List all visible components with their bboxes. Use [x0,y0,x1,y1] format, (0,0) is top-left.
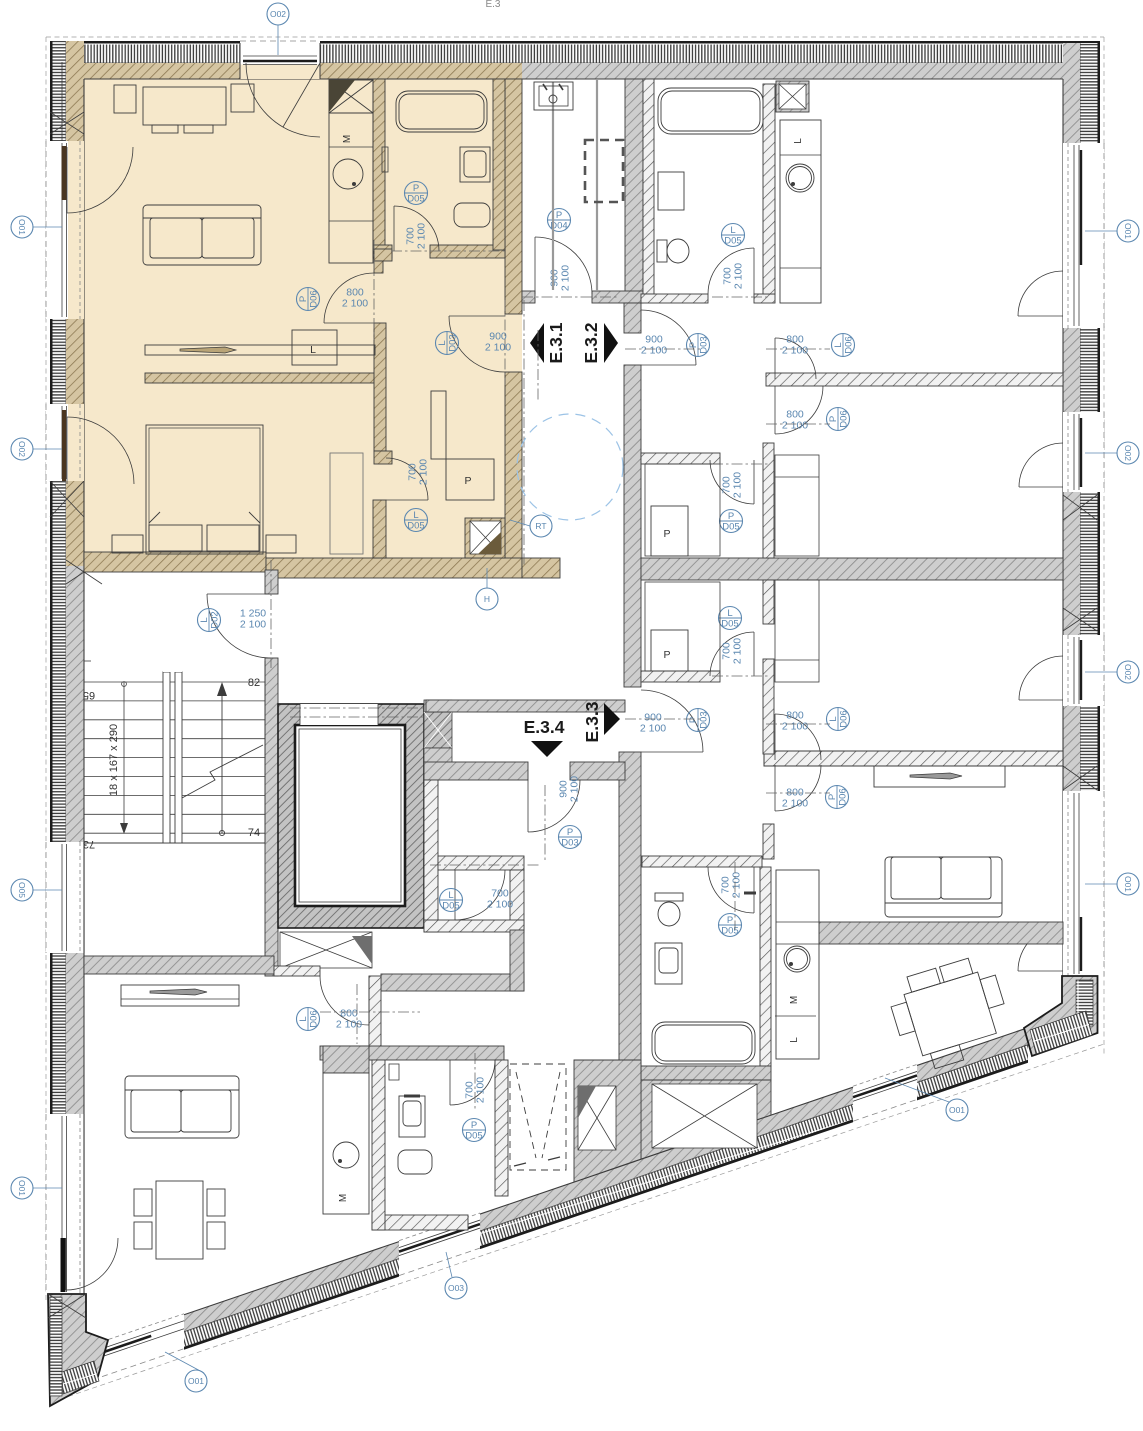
svg-text:2 100: 2 100 [475,1077,487,1103]
svg-text:L: L [298,1016,309,1021]
svg-text:2 100: 2 100 [782,798,808,810]
svg-text:O02: O02 [17,441,27,457]
svg-text:D05: D05 [721,926,738,937]
svg-text:65: 65 [83,689,95,701]
svg-text:L: L [448,890,453,901]
svg-text:H: H [484,594,490,604]
svg-text:O02: O02 [270,9,286,19]
svg-text:L: L [730,225,735,236]
svg-text:P: P [827,794,838,800]
svg-text:2 100: 2 100 [336,1019,362,1031]
svg-text:2 100: 2 100 [782,345,808,357]
svg-text:L: L [413,510,418,521]
svg-text:2 100: 2 100 [732,638,744,664]
svg-text:L: L [199,617,210,622]
svg-text:P: P [663,528,670,540]
svg-text:2 100: 2 100 [342,298,368,310]
svg-text:18 x 167 x 290: 18 x 167 x 290 [108,724,120,796]
svg-text:O01: O01 [1123,223,1133,239]
svg-text:74: 74 [248,827,260,839]
svg-text:D06: D06 [844,336,855,353]
svg-text:P: P [464,475,471,487]
svg-text:D06: D06 [839,710,850,727]
svg-text:E.3.4: E.3.4 [524,717,565,737]
svg-text:2 100: 2 100 [485,342,511,354]
svg-text:D03: D03 [561,838,578,849]
svg-text:2 100: 2 100 [731,872,743,898]
svg-text:M: M [342,135,353,143]
svg-text:D05: D05 [721,619,738,630]
svg-text:O01: O01 [17,1180,27,1196]
svg-text:D05: D05 [442,901,459,912]
svg-text:E.3.1: E.3.1 [546,322,566,363]
svg-text:D06: D06 [838,788,849,805]
svg-text:E.3: E.3 [485,0,500,10]
svg-text:M: M [338,1194,349,1202]
svg-text:M: M [789,996,800,1004]
svg-text:2 100: 2 100 [487,899,513,911]
svg-text:P: P [828,416,839,422]
svg-text:2 100: 2 100 [418,459,430,485]
svg-text:O02: O02 [1123,445,1133,461]
svg-text:L: L [437,340,448,345]
svg-text:P: P [727,915,733,926]
svg-text:RT: RT [535,521,546,531]
svg-text:O03: O03 [448,1283,464,1293]
svg-text:O01: O01 [1123,876,1133,892]
svg-text:D05: D05 [407,194,424,205]
svg-text:O01: O01 [949,1105,965,1115]
svg-text:L: L [789,1037,800,1043]
svg-text:D05: D05 [722,522,739,533]
svg-text:D05: D05 [465,1131,482,1142]
svg-text:82: 82 [248,677,260,689]
svg-text:D02: D02 [210,611,221,628]
svg-text:O05: O05 [17,882,27,898]
svg-text:D03: D03 [699,711,710,728]
svg-text:O02: O02 [1123,664,1133,680]
svg-text:P: P [663,649,670,661]
svg-text:D06: D06 [309,290,320,307]
svg-text:L: L [833,342,844,347]
svg-text:2 100: 2 100 [782,721,808,733]
svg-text:D06: D06 [309,1010,320,1027]
svg-text:D03: D03 [699,336,710,353]
svg-text:2 100: 2 100 [732,472,744,498]
svg-text:L: L [793,138,804,144]
svg-text:E.3.2: E.3.2 [581,322,601,363]
svg-text:2 100: 2 100 [640,723,666,735]
svg-text:P: P [556,210,562,221]
svg-text:D05: D05 [724,236,741,247]
svg-text:L: L [828,716,839,721]
svg-text:O01: O01 [188,1376,204,1386]
svg-text:E.3.3: E.3.3 [582,701,602,742]
svg-text:P: P [413,183,419,194]
svg-text:L: L [727,608,732,619]
svg-text:P: P [688,342,699,348]
svg-text:73: 73 [83,838,95,850]
svg-text:2 100: 2 100 [782,420,808,432]
svg-text:L: L [310,344,316,356]
svg-text:P: P [728,511,734,522]
svg-text:2 100: 2 100 [560,265,572,291]
svg-text:2 100: 2 100 [733,263,745,289]
svg-text:D03: D03 [448,334,459,351]
svg-text:2 100: 2 100 [641,345,667,357]
svg-text:P: P [471,1120,477,1131]
svg-text:P: P [298,296,309,302]
svg-text:P: P [688,717,699,723]
svg-text:2 100: 2 100 [569,776,581,802]
svg-text:O01: O01 [17,219,27,235]
svg-text:P: P [567,827,573,838]
svg-text:D05: D05 [407,521,424,532]
svg-text:2 100: 2 100 [416,223,428,249]
svg-text:D06: D06 [839,410,850,427]
svg-text:2 100: 2 100 [240,619,266,631]
